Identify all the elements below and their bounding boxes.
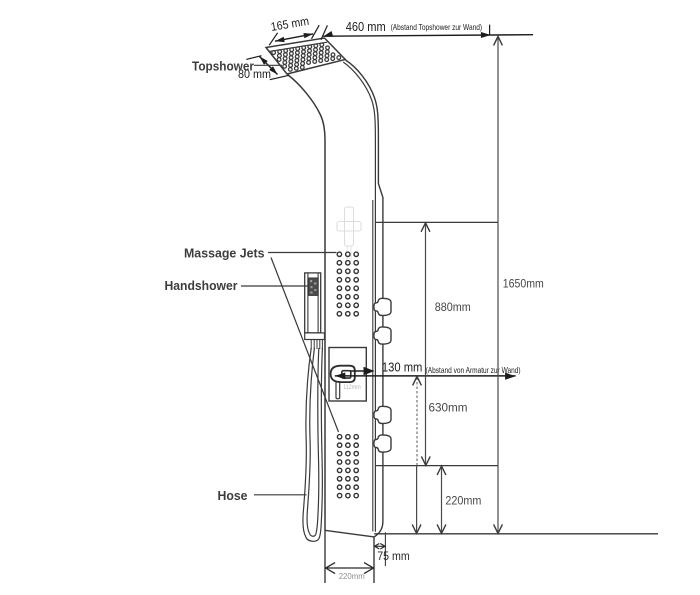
svg-text:630mm: 630mm xyxy=(429,401,468,415)
svg-text:220mm: 220mm xyxy=(339,571,365,581)
svg-text:(Abstand von Armatur zur Wand): (Abstand von Armatur zur Wand) xyxy=(426,365,521,375)
svg-text:1650mm: 1650mm xyxy=(503,277,544,291)
svg-text:130 mm: 130 mm xyxy=(382,361,423,375)
svg-text:460 mm: 460 mm xyxy=(346,20,386,34)
svg-text:(Abstand Topshower zur Wand): (Abstand Topshower zur Wand) xyxy=(391,22,483,32)
svg-text:165 mm: 165 mm xyxy=(270,14,310,34)
svg-text:Hose: Hose xyxy=(218,489,248,503)
svg-text:112mm: 112mm xyxy=(343,384,361,391)
svg-text:880mm: 880mm xyxy=(435,300,471,314)
svg-text:Massage Jets: Massage Jets xyxy=(184,247,265,261)
svg-text:75 mm: 75 mm xyxy=(377,551,410,563)
svg-text:Handshower: Handshower xyxy=(165,279,238,293)
svg-text:220mm: 220mm xyxy=(445,494,481,508)
svg-text:Topshower: Topshower xyxy=(192,60,254,74)
